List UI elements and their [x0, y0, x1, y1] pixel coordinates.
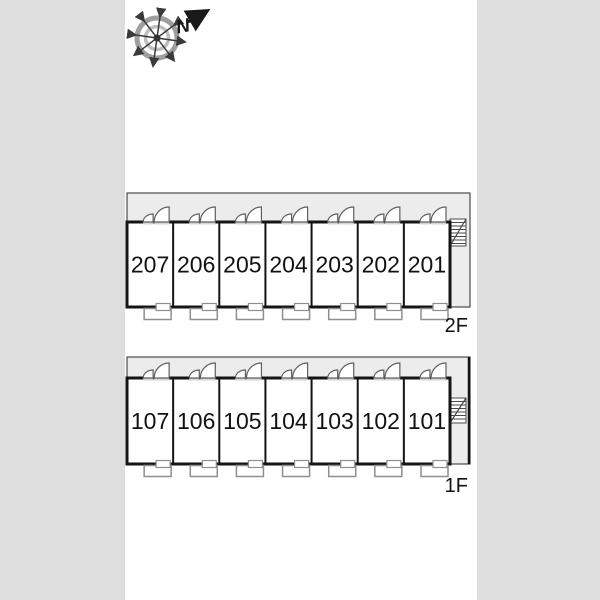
bottom-window — [341, 461, 355, 468]
floorplan-drawing: N 2072062052042032022012F107106105104103… — [0, 0, 600, 600]
floor-label: 2F — [445, 315, 468, 337]
compass-north-label: N — [174, 15, 193, 39]
bottom-window — [295, 461, 309, 468]
bottom-window — [248, 461, 262, 468]
room-number: 106 — [177, 408, 215, 434]
bottom-window — [295, 304, 309, 311]
room-number: 102 — [362, 408, 400, 434]
room-number: 107 — [131, 408, 169, 434]
room-number: 207 — [131, 252, 169, 278]
compass-rose: N — [132, 13, 200, 63]
room-number: 101 — [408, 408, 446, 434]
bottom-window — [248, 304, 262, 311]
floorplan-page: N 2072062052042032022012F107106105104103… — [0, 0, 600, 600]
staircase-icon — [450, 398, 466, 423]
room-number: 105 — [223, 408, 261, 434]
room-number: 205 — [223, 252, 261, 278]
room-number: 202 — [362, 252, 400, 278]
floor-block-1F: 1071061051041031021011F — [127, 357, 470, 497]
bottom-window — [202, 461, 216, 468]
compass-hub-icon — [154, 35, 161, 42]
north-arrow-icon — [188, 15, 200, 22]
room-number: 204 — [269, 252, 308, 278]
bottom-window — [156, 461, 170, 468]
room-number: 103 — [315, 408, 353, 434]
room-number: 201 — [408, 252, 446, 278]
floors: 2072062052042032022012F10710610510410310… — [127, 193, 470, 497]
bottom-window — [341, 304, 355, 311]
room-number: 104 — [269, 408, 308, 434]
bottom-window — [387, 461, 401, 468]
staircase-icon — [450, 219, 466, 246]
bottom-window — [156, 304, 170, 311]
bottom-window — [387, 304, 401, 311]
bottom-window — [433, 304, 447, 311]
room-number: 206 — [177, 252, 215, 278]
floor-label: 1F — [445, 475, 468, 497]
bottom-window — [433, 461, 447, 468]
bottom-window — [202, 304, 216, 311]
floor-block-2F: 2072062052042032022012F — [127, 193, 470, 337]
room-number: 203 — [315, 252, 353, 278]
